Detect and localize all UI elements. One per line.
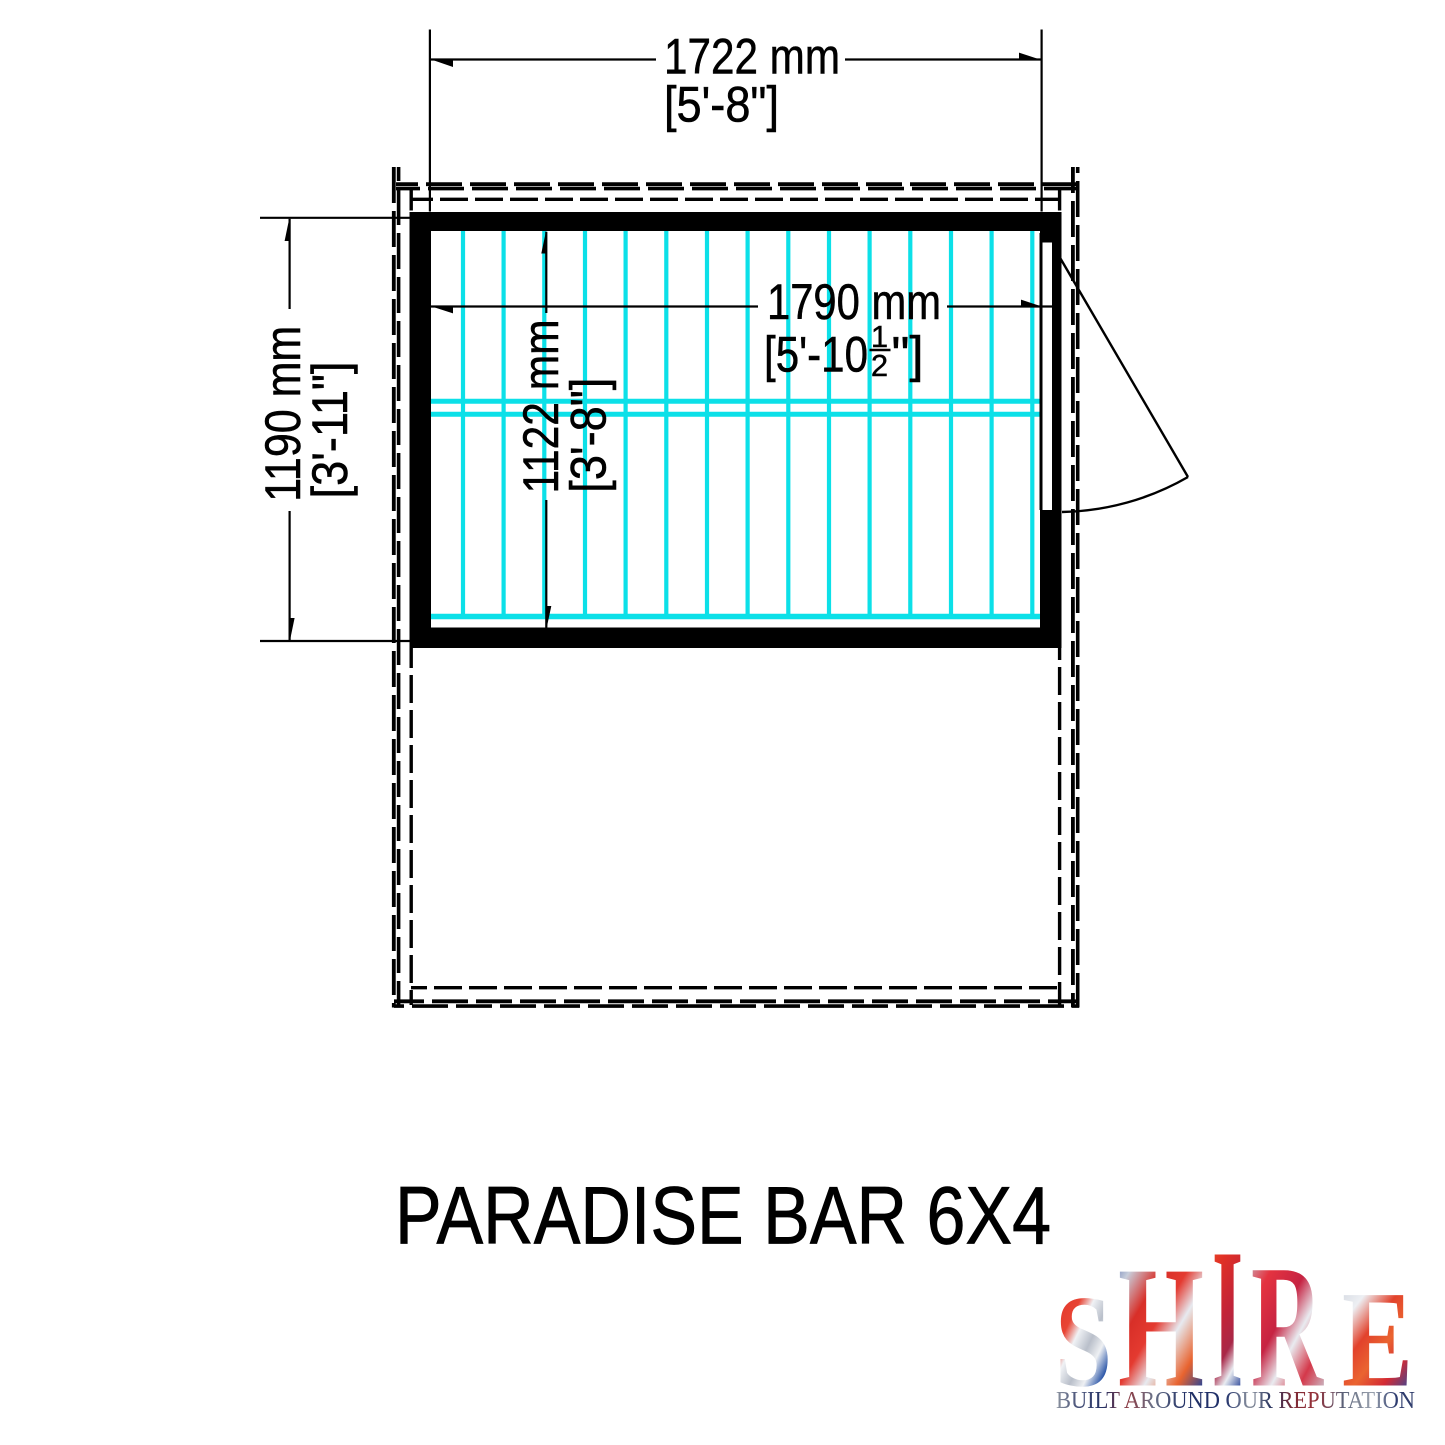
svg-text:"]: "] [892, 327, 924, 383]
svg-text:[3'-11"]: [3'-11"] [302, 362, 358, 499]
svg-text:BUILT AROUND OUR REPUTATION: BUILT AROUND OUR REPUTATION [1056, 1388, 1415, 1414]
svg-text:PARADISE BAR 6X4: PARADISE BAR 6X4 [395, 1171, 1051, 1262]
svg-text:[5'-10: [5'-10 [764, 327, 868, 383]
svg-text:[5'-8"]: [5'-8"] [664, 76, 779, 132]
svg-text:1790 mm: 1790 mm [767, 274, 941, 330]
svg-text:2: 2 [871, 348, 888, 383]
svg-text:[3'-8"]: [3'-8"] [561, 378, 617, 493]
